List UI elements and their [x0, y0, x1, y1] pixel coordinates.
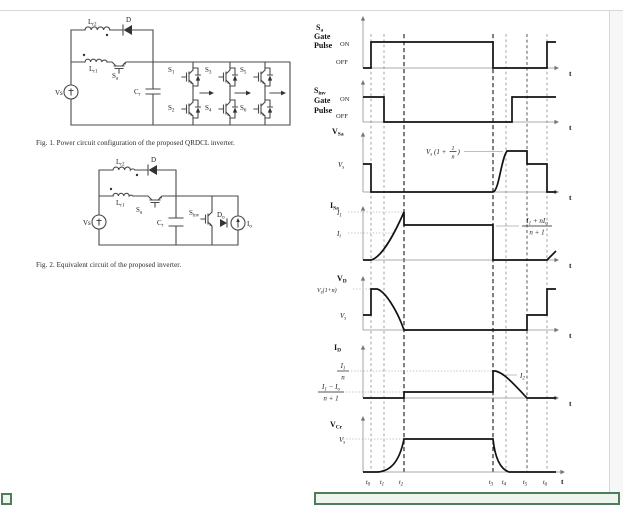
svg-text:t2: t2 — [399, 479, 404, 487]
fig1-sa-label: Sa — [112, 72, 119, 82]
time-guides — [371, 34, 547, 472]
vsa-vs-level-label: Vs — [338, 161, 344, 171]
fig2-caption: Fig. 2. Equivalent circuit of the propos… — [36, 261, 181, 269]
svg-text:I1: I1 — [340, 362, 346, 372]
isa-ii-level-label: Ii — [336, 230, 341, 240]
fig1-circuit-schematic: Vs Lr2 D Lr1 Sa Cr S1 S2 S3 S4 — [36, 14, 298, 138]
fig1-lr2-label: Lr2 — [88, 18, 97, 28]
panel-sinv-gate: Sinv Gate Pulse ON OFF t — [314, 80, 572, 132]
id-i2-label: I2 — [519, 372, 525, 382]
fig1-lr2-inductor — [85, 27, 110, 30]
sa-on-label: ON — [340, 41, 350, 48]
svg-text:n: n — [341, 374, 345, 382]
fig2-io-label: Io — [247, 220, 252, 230]
fig2-lr1-inductor — [113, 193, 133, 196]
fig1-s1-device — [182, 68, 200, 86]
time-axis-labels: t0 t1 t2 t3 t4 t5 t6 t — [366, 477, 564, 487]
panel-vsa-name: VSa — [332, 127, 344, 138]
panel-sa-gate-name3: Pulse — [314, 41, 333, 50]
vsa-t-axis-label: t — [569, 193, 572, 202]
svg-text:t0: t0 — [366, 479, 371, 487]
svg-text:t4: t4 — [502, 479, 507, 487]
document-page: Vs Lr2 D Lr1 Sa Cr S1 S2 S3 S4 — [0, 0, 623, 500]
svg-text:1: 1 — [452, 146, 455, 152]
page-right-gutter — [610, 11, 623, 500]
cropped-green-box-left — [1, 493, 12, 505]
panel-vcr: VCr Vs t0 t1 t2 t3 t4 t5 t6 t — [330, 416, 565, 487]
fig1-s6-label: S6 — [240, 104, 247, 114]
panel-sinv-gate-name2: Gate — [314, 96, 331, 105]
vd-vs-level-label: Vs — [340, 312, 346, 322]
fig1-s3-device — [219, 68, 237, 86]
vsa-peak-annotation: Vs (1 + 1 n ) — [426, 146, 461, 161]
panel-vd-name: VD — [337, 274, 347, 285]
panel-vsa: VSa Vs Vs (1 + 1 n ) t — [332, 127, 572, 202]
panel-sa-gate: Sa Gate Pulse ON OFF t — [314, 16, 572, 78]
fig1-caption: Fig. 1. Power circuit configuration of t… — [36, 139, 235, 147]
vcr-vs-level-label: Vs — [339, 436, 345, 446]
svg-text:t5: t5 — [523, 479, 528, 487]
fig1-s5-label: S5 — [240, 66, 247, 76]
fig1-lr1-label: Lr1 — [89, 65, 98, 75]
isa-i1-level-label: I1 — [336, 209, 342, 219]
panel-sinv-gate-name: Sinv — [314, 86, 326, 97]
panel-vcr-name: VCr — [330, 420, 343, 431]
panel-sa-gate-name2: Gate — [314, 32, 331, 41]
fig1-s1-label: S1 — [168, 66, 175, 76]
isa-t-axis-label: t — [569, 261, 572, 270]
svg-text:Vs (1 +: Vs (1 + — [426, 148, 447, 158]
panel-id-name: ID — [334, 343, 341, 354]
fig1-cr-label: Cr — [134, 88, 141, 98]
fig2-circuit-schematic: Vs Lr2 D Lr1 Sa Cr Sinv Do Io — [60, 155, 260, 255]
fig2-lr2-label: Lr2 — [116, 158, 125, 168]
vcr-t-axis-label: t — [561, 477, 564, 486]
panel-id: ID I1 n I1 − Io n + 1 I2 t — [318, 343, 572, 408]
timing-diagram: Sa Gate Pulse ON OFF t Sinv Gate Pulse O… — [313, 10, 590, 495]
panel-isa: ISa I1 Ii I1 + nIo n + 1 t — [330, 201, 572, 270]
sa-off-label: OFF — [336, 59, 348, 66]
sinv-on-label: ON — [340, 96, 350, 103]
fig2-sinv-switch — [201, 210, 212, 228]
fig2-cr-label: Cr — [157, 219, 164, 229]
vd-hi-level-label: Vs(1+n) — [317, 287, 337, 295]
cropped-green-box-right — [314, 492, 620, 505]
vd-t-axis-label: t — [569, 331, 572, 340]
fig2-sinv-label: Sinv — [189, 209, 200, 219]
sinv-off-label: OFF — [336, 113, 348, 120]
fig1-s2-label: S2 — [168, 104, 175, 114]
fig1-s6-device — [254, 100, 272, 118]
svg-text:t3: t3 — [489, 479, 494, 487]
fig2-vs-label: Vs — [83, 219, 91, 227]
fig2-cr-capacitor — [169, 218, 183, 226]
fig1-s3-label: S3 — [205, 66, 212, 76]
sa-t-axis-label: t — [569, 69, 572, 78]
fig1-d-label: D — [126, 16, 131, 24]
id-t-axis-label: t — [569, 399, 572, 408]
svg-text:I1 − Io: I1 − Io — [321, 383, 340, 393]
page-right-rule — [609, 10, 610, 500]
fig2-d-label: D — [151, 156, 156, 164]
id-lo-fraction: I1 − Io n + 1 — [318, 383, 344, 403]
fig2-do-label: Do — [217, 211, 225, 220]
fig1-vs-label: Vs — [55, 89, 63, 97]
fig2-sa-switch — [146, 196, 164, 207]
svg-text:n + 1: n + 1 — [529, 229, 544, 237]
fig1-s2-device — [182, 100, 200, 118]
svg-text:I1 + nIo: I1 + nIo — [525, 217, 548, 227]
fig1-s4-device — [219, 100, 237, 118]
svg-text:n: n — [452, 155, 455, 161]
svg-text:): ) — [457, 148, 461, 156]
fig1-lr1-inductor — [85, 59, 107, 62]
panel-vd: VD Vs(1+n) Vs t — [317, 274, 572, 340]
fig2-sa-label: Sa — [136, 206, 143, 216]
fig1-cr-capacitor — [146, 89, 160, 94]
id-hi-fraction: I1 n — [337, 362, 349, 382]
fig1-s4-label: S4 — [205, 104, 212, 114]
panel-sinv-gate-name3: Pulse — [314, 106, 333, 115]
sinv-t-axis-label: t — [569, 123, 572, 132]
fig1-s5-device — [254, 68, 272, 86]
svg-text:t6: t6 — [543, 479, 548, 487]
svg-text:t1: t1 — [380, 479, 384, 487]
svg-text:n + 1: n + 1 — [323, 395, 338, 403]
fig2-lr1-label: Lr1 — [116, 199, 125, 209]
